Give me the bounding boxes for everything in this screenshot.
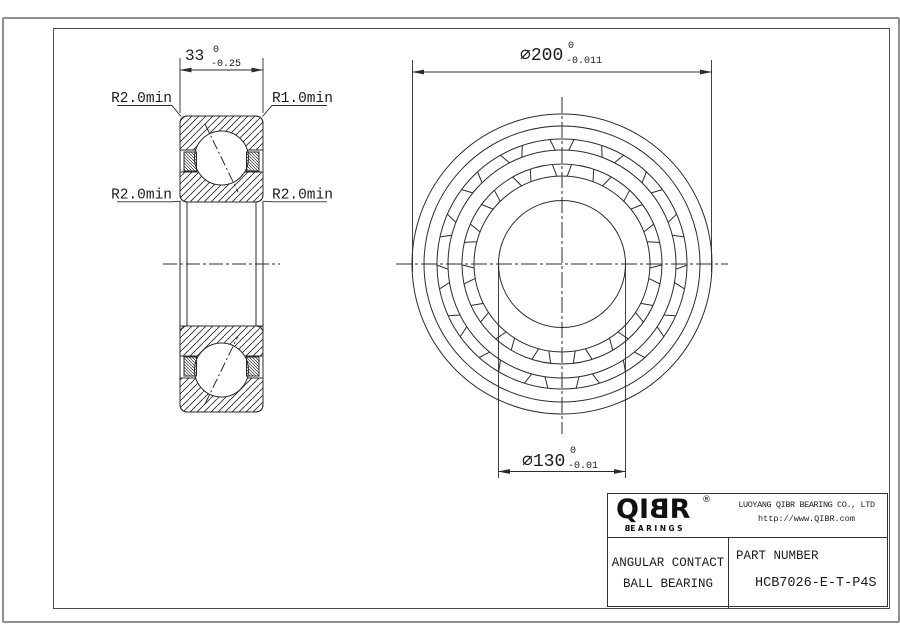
cage-pocket-edge — [481, 312, 489, 322]
cage-pocket-edge — [511, 338, 514, 350]
cage-pocket-edge — [471, 303, 483, 305]
cage-pocket-edge — [651, 190, 662, 193]
cage-section-right — [247, 357, 260, 376]
cage-pocket-edge — [593, 169, 594, 181]
qibr-logo: QIBR — [616, 496, 690, 523]
cage-pocket-edge — [532, 349, 539, 360]
registered-mark: ® — [702, 495, 711, 505]
chamfer-label-top-left: R2.0min — [111, 91, 172, 107]
cage-pocket-edge — [462, 265, 474, 268]
width-dim-tol-upper: 0 — [213, 45, 219, 56]
cage-pocket-edge — [448, 315, 460, 316]
title-block-bottom-row: ANGULAR CONTACT BALL BEARING PART NUMBER… — [608, 538, 887, 608]
cage-pocket-edge — [549, 351, 551, 363]
logo-bearings-text: BEARINGS — [622, 524, 685, 533]
front-view: ⌀200 0 -0.011 ⌀130 0 -0.01 — [396, 41, 728, 478]
cage-pocket-edge — [585, 349, 592, 360]
cage-pocket-edge — [470, 224, 480, 232]
bearing-type-cell: ANGULAR CONTACT BALL BEARING — [608, 538, 729, 608]
cage-pocket-edge — [615, 155, 624, 163]
title-block: QIBR ® BEARINGS LUOYANG QIBR BEARING CO.… — [607, 493, 888, 607]
chamfer-label-bottom-right: R2.0min — [272, 188, 333, 204]
logo-cell: QIBR ® BEARINGS — [608, 494, 726, 537]
cage-pocket-edge — [479, 352, 489, 358]
drawing-sheet: 33 0 -0.25 R2.0min R1.0min R2.0min R2.0m… — [0, 0, 900, 636]
cage-pocket-edge — [676, 265, 687, 269]
cage-section-left — [184, 152, 197, 171]
bore-dim-tol-upper: 0 — [570, 446, 576, 457]
outer-dim-tol-lower: -0.011 — [566, 56, 602, 67]
cage-pocket-edge — [478, 172, 482, 183]
cage-pocket-edge — [664, 315, 676, 316]
cage-pocket-edge — [464, 278, 475, 284]
outer-dim-value: ⌀200 — [520, 46, 563, 66]
company-name: LUOYANG QIBR BEARING CO., LTD — [726, 500, 887, 510]
cage-pocket-edge — [609, 338, 612, 350]
cage-pocket-edge — [500, 155, 509, 163]
outer-dim-tol-upper: 0 — [568, 41, 574, 52]
width-dim-value: 33 — [185, 47, 204, 65]
cage-pocket-edge — [644, 224, 654, 232]
cage-pocket-edge — [618, 332, 628, 339]
cage-pocket-edge — [530, 169, 531, 181]
cage-pocket-edge — [668, 214, 677, 222]
section-top-half — [180, 116, 263, 202]
cage-pocket-edge — [460, 327, 467, 337]
cage-pocket-edge — [567, 165, 571, 177]
cage-pocket-edge — [642, 172, 646, 183]
cage-pocket-edge — [636, 312, 644, 322]
bearing-type-line1: ANGULAR CONTACT — [612, 556, 725, 570]
part-number-cell: PART NUMBER HCB7026-E-T-P4S — [729, 538, 887, 608]
cage-pocket-edge — [550, 140, 555, 151]
bearing-type-line2: BALL BEARING — [623, 577, 713, 591]
cage-pocket-edge — [631, 205, 643, 210]
cage-pocket-edge — [545, 377, 548, 389]
cage-pocket-edge — [675, 283, 685, 289]
cage-pocket-edge — [569, 140, 574, 151]
cage-section-left — [184, 357, 197, 376]
chamfer-label-top-right: R1.0min — [272, 91, 333, 107]
cage-pocket-edge — [494, 190, 500, 201]
cage-section-right — [247, 152, 260, 171]
cage-pocket-edge — [552, 165, 556, 177]
cage-pocket-edge — [649, 278, 660, 284]
company-cell: LUOYANG QIBR BEARING CO., LTD http://www… — [726, 494, 887, 537]
bore-dimension — [499, 264, 626, 478]
cage-pocket-edge — [624, 190, 630, 201]
section-bottom-half — [180, 326, 263, 412]
part-number-value: HCB7026-E-T-P4S — [755, 576, 877, 591]
cage-pocket-edge — [634, 352, 644, 358]
cage-pocket-edge — [672, 235, 684, 237]
cage-pocket-edge — [513, 177, 522, 186]
cage-pocket-edge — [482, 205, 494, 210]
chamfer-label-bottom-left: R2.0min — [111, 188, 172, 204]
cage-pocket-edge — [573, 351, 575, 363]
cage-pocket-edge — [440, 283, 450, 289]
bore-dim-value: ⌀130 — [522, 452, 565, 472]
section-view: 33 0 -0.25 R2.0min R1.0min R2.0min R2.0m… — [111, 45, 333, 412]
cage-pocket-edge — [647, 242, 659, 243]
cage-pocket-edge — [641, 303, 653, 305]
cage-pocket-edge — [440, 235, 452, 237]
title-block-top-row: QIBR ® BEARINGS LUOYANG QIBR BEARING CO.… — [608, 494, 887, 538]
cage-pocket-edge — [524, 374, 531, 383]
cage-pocket-edge — [576, 377, 579, 389]
cage-pocket-edge — [650, 265, 662, 268]
cage-pocket-edge — [657, 327, 664, 337]
cage-pocket-edge — [462, 190, 473, 193]
cage-pocket-edge — [496, 332, 506, 339]
cage-pocket-edge — [437, 265, 448, 269]
cage-pocket-edge — [464, 242, 476, 243]
cage-pocket-edge — [603, 177, 612, 186]
part-number-label: PART NUMBER — [736, 549, 819, 563]
cage-pocket-edge — [592, 374, 599, 383]
company-website: http://www.QIBR.com — [726, 514, 887, 524]
cage-pocket-edge — [447, 214, 456, 222]
bore-dim-tol-lower: -0.01 — [568, 461, 598, 472]
width-dim-tol-lower: -0.25 — [211, 59, 241, 70]
